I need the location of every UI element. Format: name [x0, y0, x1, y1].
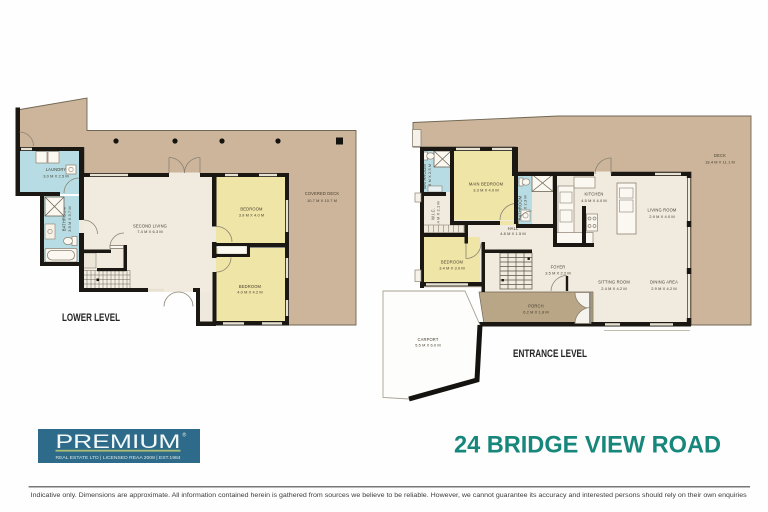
svg-text:18.4 M X 11.1 M: 18.4 M X 11.1 M — [705, 160, 735, 165]
svg-text:10.7 M X 10.7 M: 10.7 M X 10.7 M — [307, 198, 337, 203]
svg-text:6.2 M X 1.8 M: 6.2 M X 1.8 M — [523, 310, 549, 315]
svg-text:24 BRIDGE VIEW ROAD: 24 BRIDGE VIEW ROAD — [454, 432, 721, 459]
svg-text:BEDROOM: BEDROOM — [441, 260, 464, 265]
svg-text:PORCH: PORCH — [528, 304, 544, 309]
svg-text:®: ® — [183, 432, 187, 439]
svg-text:FOYER: FOYER — [551, 265, 566, 270]
svg-text:COVERED DECK: COVERED DECK — [305, 191, 340, 196]
svg-text:7.4 M X 6.3 M: 7.4 M X 6.3 M — [137, 229, 163, 234]
svg-text:KITCHEN: KITCHEN — [584, 192, 603, 197]
svg-text:5.5 M X 6.0 M: 5.5 M X 6.0 M — [415, 343, 441, 348]
svg-text:3.3 M X 4.0 M: 3.3 M X 4.0 M — [473, 188, 499, 193]
svg-text:BEDROOM: BEDROOM — [240, 207, 263, 212]
svg-text:Indicative only. Dimensions ar: Indicative only. Dimensions are approxim… — [31, 492, 747, 499]
svg-text:3.9 M X 3.7 M: 3.9 M X 3.7 M — [67, 206, 72, 232]
svg-text:2.9 M X 4.0 M: 2.9 M X 4.0 M — [649, 214, 675, 219]
svg-text:1.8 M X 2.5 M: 1.8 M X 2.5 M — [427, 164, 432, 190]
svg-text:DINING AREA: DINING AREA — [650, 280, 678, 285]
svg-text:BEDROOM: BEDROOM — [239, 284, 262, 289]
svg-text:CARPORT: CARPORT — [418, 337, 439, 342]
svg-text:4.5 M X 4.0 M: 4.5 M X 4.0 M — [581, 198, 607, 203]
svg-text:3.4 M X 3.0 M: 3.4 M X 3.0 M — [439, 266, 465, 271]
svg-text:REAL ESTATE LTD | LICENSED REA: REAL ESTATE LTD | LICENSED REAA 2008 | E… — [56, 455, 182, 460]
svg-text:ENTRANCE LEVEL: ENTRANCE LEVEL — [513, 348, 587, 360]
svg-text:LAUNDRY: LAUNDRY — [46, 167, 67, 172]
svg-text:LOWER LEVEL: LOWER LEVEL — [62, 312, 120, 324]
svg-text:2.9 M X 4.2 M: 2.9 M X 4.2 M — [651, 286, 677, 291]
svg-text:DECK: DECK — [714, 153, 726, 158]
svg-text:3.5 M X 2.2 M: 3.5 M X 2.2 M — [545, 271, 571, 276]
svg-text:4.8 M X 1.5 M: 4.8 M X 1.5 M — [500, 231, 526, 236]
svg-text:2.4 M X 2.1 M: 2.4 M X 2.1 M — [436, 201, 441, 227]
svg-text:LIVING ROOM: LIVING ROOM — [648, 208, 677, 213]
svg-text:SECOND LIVING: SECOND LIVING — [133, 224, 167, 229]
svg-text:3.0 M X 2.5 M: 3.0 M X 2.5 M — [43, 174, 69, 179]
svg-text:3.9 M X 4.0 M: 3.9 M X 4.0 M — [239, 213, 265, 218]
svg-text:SITTING ROOM: SITTING ROOM — [598, 280, 630, 285]
svg-text:MAIN BEDROOM: MAIN BEDROOM — [469, 182, 504, 187]
svg-text:2.4 M X 4.2 M: 2.4 M X 4.2 M — [601, 286, 627, 291]
svg-text:4.0 M X 4.2 M: 4.0 M X 4.2 M — [237, 290, 263, 295]
